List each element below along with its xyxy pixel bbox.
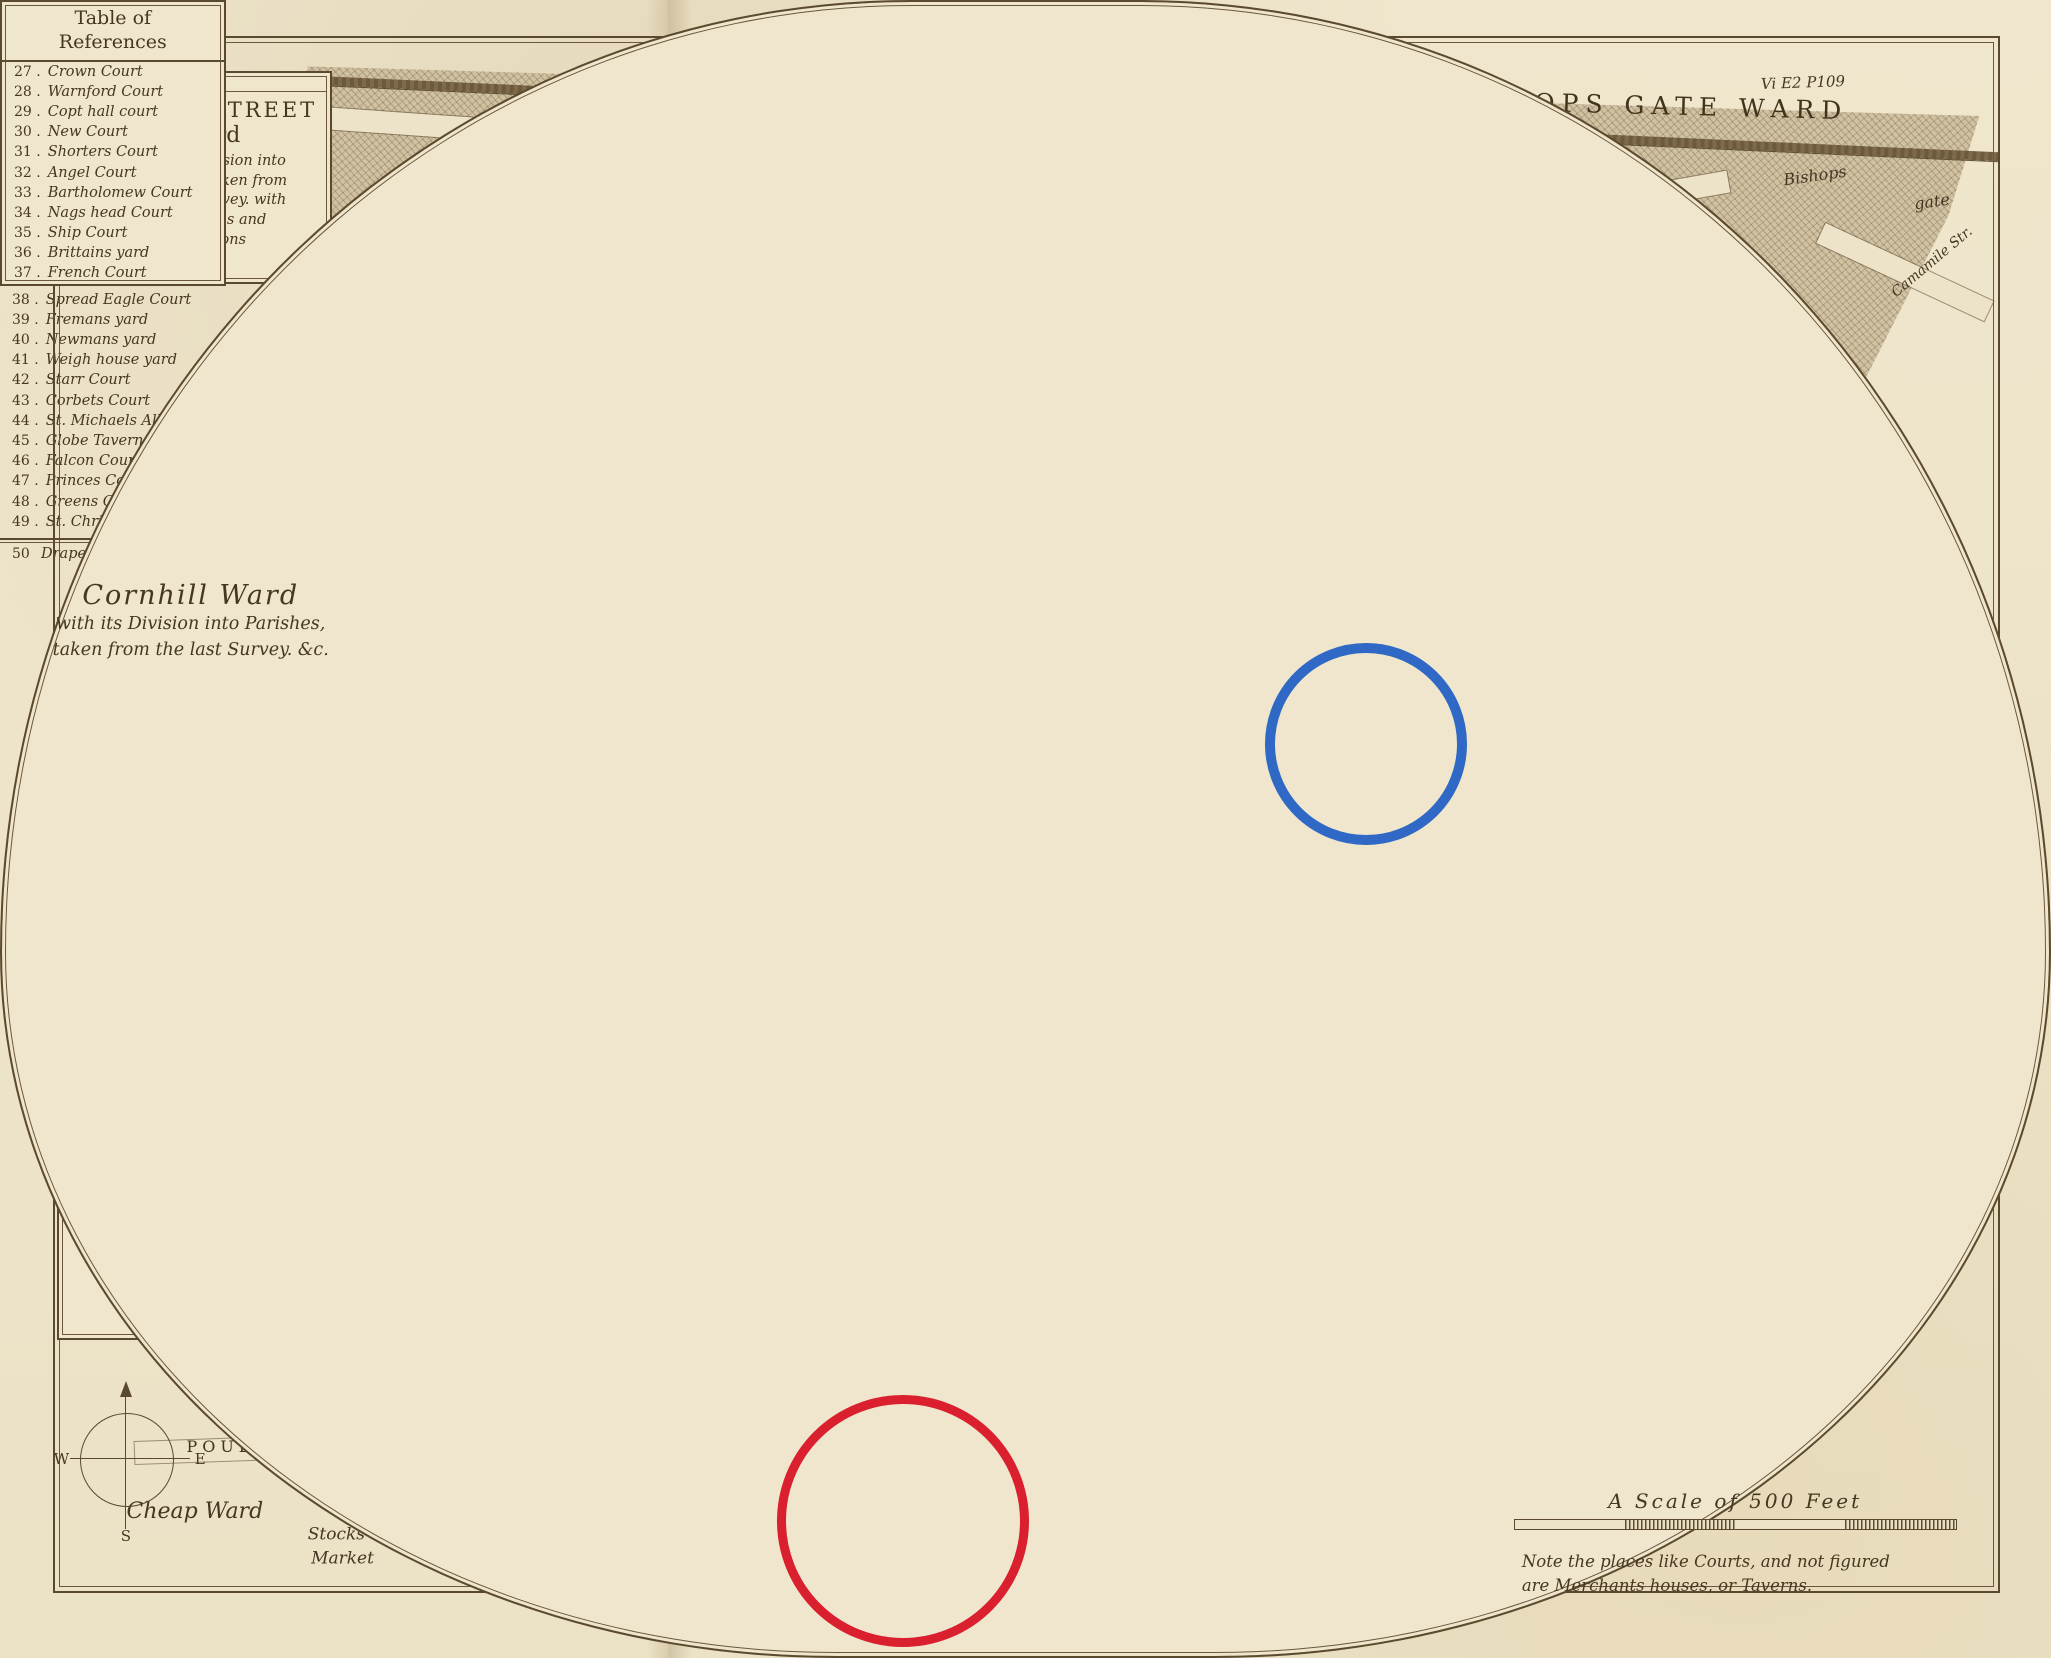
reference-number: 31 . xyxy=(14,144,41,160)
reference-item: 37 .French Court xyxy=(2,263,224,283)
reference-number: 43 . xyxy=(12,393,39,409)
reference-number: 47 . xyxy=(12,473,39,489)
scale-bar: A Scale of 500 Feet xyxy=(1514,1489,1957,1530)
reference-item: 27 .Crown Court xyxy=(2,62,224,82)
reference-item: 32 .Angel Court xyxy=(2,162,224,182)
reference-number: 39 . xyxy=(12,312,39,328)
scale-caption: A Scale of 500 Feet xyxy=(1514,1489,1957,1513)
right-table-box: Table of References 27 .Crown Court28 .W… xyxy=(0,0,226,286)
antique-map-page: BROADSTREETWARDCORNHILLWARDSTREETGATEWAR… xyxy=(0,0,2051,1658)
compass-axis xyxy=(125,1389,127,1529)
reference-item: 36 .Brittains yard xyxy=(2,243,224,263)
scale-segments xyxy=(1514,1519,1957,1530)
reference-number: 32 . xyxy=(14,165,41,181)
cartouche-title: Cornhill Ward xyxy=(0,564,381,611)
reference-number: 49 . xyxy=(12,514,39,530)
reference-item: 31 .Shorters Court xyxy=(2,142,224,162)
cartouche-frame xyxy=(0,0,2051,1658)
reference-number: 30 . xyxy=(14,124,41,140)
reference-number: 45 . xyxy=(12,433,39,449)
compass-west: W xyxy=(54,1450,69,1468)
reference-number: 28 . xyxy=(14,84,41,100)
reference-number: 33 . xyxy=(14,185,41,201)
reference-number: 34 . xyxy=(14,205,41,221)
reference-number: 44 . xyxy=(12,413,39,429)
reference-number: 50 xyxy=(12,546,34,562)
reference-item: 28 .Warnford Court xyxy=(2,82,224,102)
reference-number: 42 . xyxy=(12,372,39,388)
reference-item: 34 .Nags head Court xyxy=(2,203,224,223)
reference-item: 35 .Ship Court xyxy=(2,223,224,243)
cornhill-cartouche: Cornhill Ward with its Division into Par… xyxy=(0,564,381,783)
reference-label: Copt hall court xyxy=(48,104,158,120)
cartouche-line: taken from the last Survey. &c. xyxy=(0,637,381,663)
reference-number: 27 . xyxy=(14,64,41,80)
compass-south: S xyxy=(121,1527,131,1545)
reference-number: 40 . xyxy=(12,332,39,348)
reference-label: Crown Court xyxy=(48,64,143,80)
compass-east: E xyxy=(195,1450,206,1468)
north-pointer-icon xyxy=(120,1381,132,1397)
reference-item: 30 .New Court xyxy=(2,122,224,142)
reference-number: 35 . xyxy=(14,225,41,241)
reference-label: New Court xyxy=(48,124,128,140)
reference-label: French Court xyxy=(48,265,147,281)
reference-number: 48 . xyxy=(12,494,39,510)
cartouche-line: with its Division into Parishes, xyxy=(0,611,381,637)
reference-number: 37 . xyxy=(14,265,41,281)
reference-label: Ship Court xyxy=(48,225,128,241)
reference-item: 29 .Copt hall court xyxy=(2,102,224,122)
map-note: Note the places like Courts, and not fig… xyxy=(1522,1550,1953,1598)
reference-number: 38 . xyxy=(12,292,39,308)
reference-label: Nags head Court xyxy=(48,205,173,221)
reference-number: 41 . xyxy=(12,352,39,368)
reference-item: 33 .Bartholomew Court xyxy=(2,183,224,203)
reference-number: 46 . xyxy=(12,453,39,469)
scale-segment xyxy=(1625,1520,1735,1529)
reference-label: Brittains yard xyxy=(48,245,150,261)
compass-ring xyxy=(80,1413,174,1507)
scale-segment xyxy=(1515,1520,1625,1529)
scale-segment xyxy=(1735,1520,1845,1529)
reference-label: Warnford Court xyxy=(48,84,163,100)
compass-axis xyxy=(70,1458,190,1460)
table-title: Table of References xyxy=(2,2,224,62)
reference-label: Bartholomew Court xyxy=(48,185,193,201)
reference-label: Angel Court xyxy=(48,165,137,181)
reference-number: 29 . xyxy=(14,104,41,120)
reference-label: Shorters Court xyxy=(48,144,158,160)
reference-number: 36 . xyxy=(14,245,41,261)
compass-rose: W E S xyxy=(70,1403,190,1523)
reference-list: 27 .Crown Court28 .Warnford Court29 .Cop… xyxy=(2,62,224,284)
scale-segment xyxy=(1845,1520,1955,1529)
